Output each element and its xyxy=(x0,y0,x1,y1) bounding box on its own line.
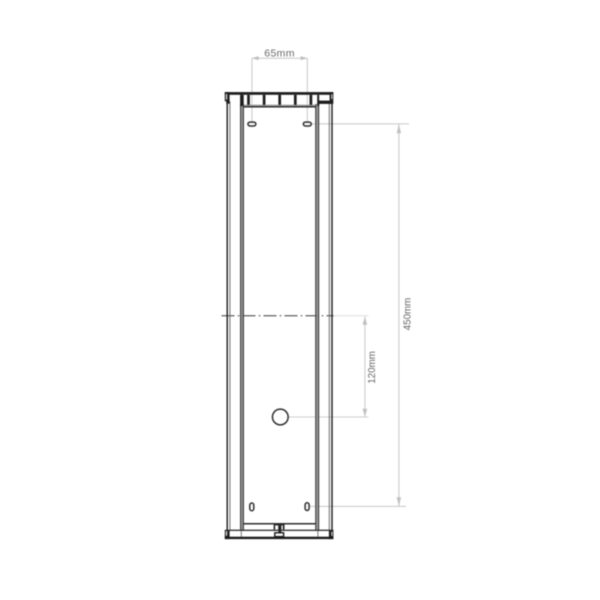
svg-text:65mm: 65mm xyxy=(264,48,295,60)
svg-text:450mm: 450mm xyxy=(403,298,414,331)
svg-text:120mm: 120mm xyxy=(367,351,378,384)
